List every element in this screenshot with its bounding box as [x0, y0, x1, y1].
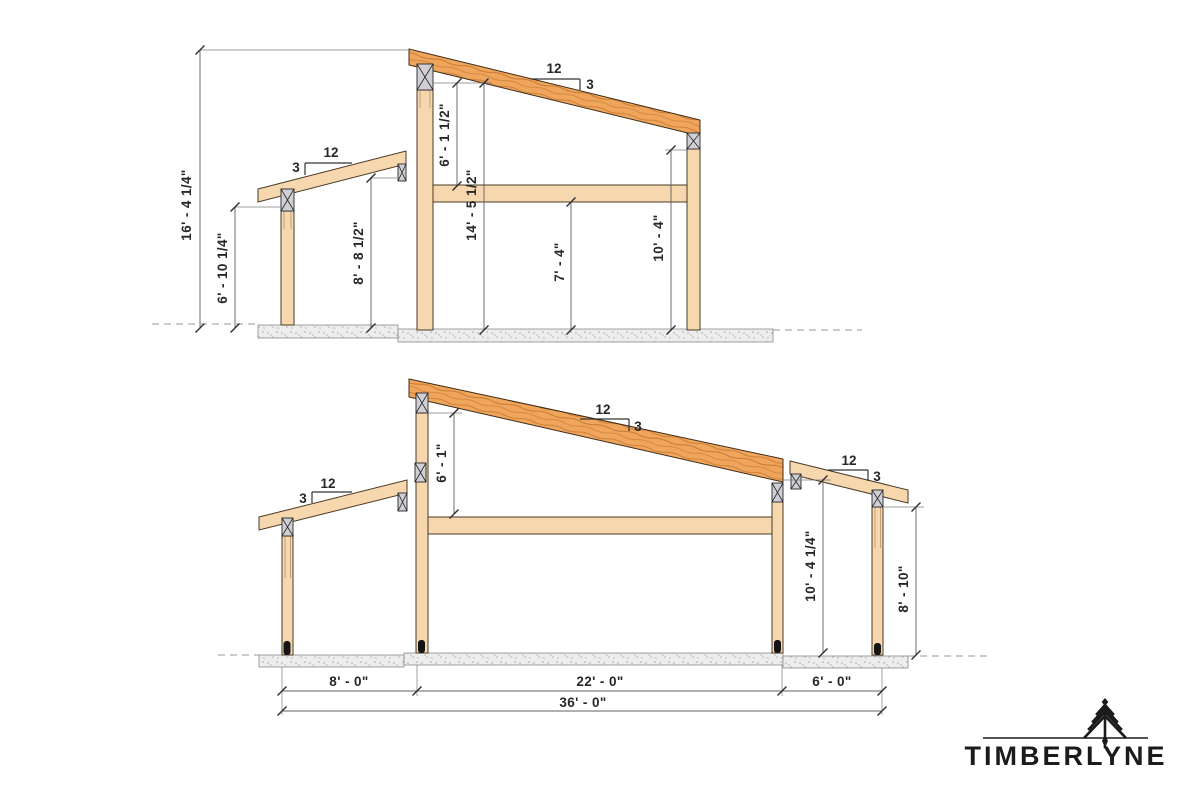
right-post [687, 148, 700, 330]
main-post [417, 90, 433, 330]
steel-plate [416, 393, 428, 413]
slope-rise-label: 12 [595, 402, 610, 417]
main-roof-rafter [409, 379, 783, 482]
dim-bay-right: 6' - 0" [812, 674, 851, 689]
post-base-anchor [874, 643, 881, 655]
top-section-view: 16' - 4 1/4" 6' - 10 1/4" 8' - 8 1/2" 6'… [152, 46, 862, 343]
dim-bay-main: 22' - 0" [576, 674, 623, 689]
dim-right-porch-post-height: 8' - 10" [896, 565, 911, 612]
dim-main-post-height: 14' - 5 1/2" [464, 169, 479, 240]
steel-plate [398, 493, 407, 511]
porch-post-left [282, 536, 293, 655]
steel-plate [281, 189, 294, 211]
porch-post-right [872, 507, 883, 655]
main-post-right [772, 502, 783, 653]
post-base-anchor [284, 641, 291, 655]
dim-beam-clear-height: 7' - 4" [552, 242, 567, 281]
steel-plate [687, 133, 700, 149]
main-slab [398, 329, 773, 342]
porch-slab [258, 325, 398, 338]
main-slab [404, 653, 783, 665]
dim-post-top-to-beam: 6' - 1 1/2" [437, 103, 452, 167]
slope-rise-label: 12 [546, 61, 561, 76]
loft-beam [428, 517, 772, 534]
slope-run-label: 3 [299, 491, 307, 506]
dim-bay-left: 8' - 0" [329, 674, 368, 689]
post-base-anchor [418, 640, 425, 653]
dim-overall-height: 16' - 4 1/4" [179, 169, 194, 240]
steel-plate [872, 490, 883, 507]
drawing-canvas: 16' - 4 1/4" 6' - 10 1/4" 8' - 8 1/2" 6'… [0, 0, 1200, 800]
slope-rise-label: 12 [320, 476, 335, 491]
steel-plate [282, 518, 293, 536]
dim-overall-width: 36' - 0" [559, 695, 606, 710]
porch-slab-right [783, 656, 908, 668]
slope-run-label: 3 [586, 77, 594, 92]
dim-porch-post-height: 6' - 10 1/4" [215, 232, 230, 303]
dim-porch-rafter-height: 8' - 8 1/2" [351, 221, 366, 285]
brand-wordmark: TIMBERLYNE [964, 741, 1167, 771]
slope-run-label: 3 [634, 419, 642, 434]
porch-post [281, 211, 294, 325]
steel-plate [791, 474, 801, 489]
bottom-section-view: 6' - 1" 10' - 4 1/4" 8' - 10" 8' - 0" 22… [218, 379, 990, 716]
slope-run-label: 3 [873, 469, 881, 484]
dim-post-top-to-beam: 6' - 1" [434, 443, 449, 482]
post-base-anchor [774, 640, 781, 653]
slope-rise-label: 12 [841, 453, 856, 468]
steel-plate [772, 483, 783, 502]
porch-slab-left [259, 655, 404, 667]
steel-plate [398, 164, 406, 181]
slope-run-label: 3 [292, 160, 300, 175]
timber-frame-section-drawing: 16' - 4 1/4" 6' - 10 1/4" 8' - 8 1/2" 6'… [0, 0, 1200, 800]
steel-plate [415, 463, 426, 482]
steel-plate [417, 64, 433, 90]
dimension-ticks [278, 409, 921, 716]
dim-right-main-post-height: 10' - 4 1/4" [803, 530, 818, 601]
slope-rise-label: 12 [323, 145, 338, 160]
brand-logo: TIMBERLYNE [964, 698, 1167, 771]
main-post-left [416, 413, 428, 653]
dim-right-post-height: 10' - 4" [651, 214, 666, 261]
